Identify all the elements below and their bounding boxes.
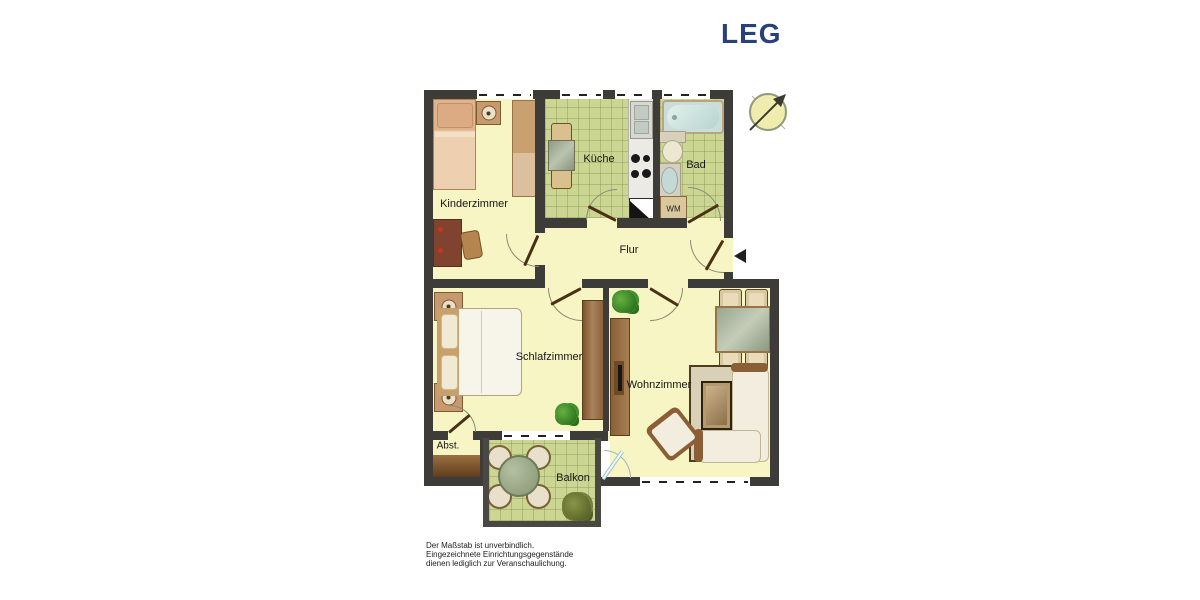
coffee-table <box>701 381 732 430</box>
nightstand <box>476 101 501 125</box>
wall <box>653 98 660 228</box>
sofa <box>699 430 761 463</box>
room-label-flur: Flur <box>620 244 639 256</box>
window <box>640 477 750 486</box>
wall <box>724 90 733 238</box>
sofa-armrest <box>731 363 768 372</box>
wall <box>688 279 779 288</box>
wall <box>582 279 648 288</box>
wall <box>424 477 483 486</box>
north-arrow-icon <box>742 86 794 138</box>
plant-icon <box>555 403 577 425</box>
single-bed <box>433 99 476 190</box>
double-bed <box>437 308 522 396</box>
stove <box>629 151 652 184</box>
wall <box>535 265 545 288</box>
wall <box>603 288 609 431</box>
room-label-balkon: Balkon <box>556 472 590 484</box>
wall <box>660 218 687 228</box>
wall <box>424 90 433 486</box>
washbasin <box>658 163 681 198</box>
window <box>477 90 533 99</box>
kitchen-sink <box>630 101 653 139</box>
room-label-schlafzimmer: Schlafzimmer <box>516 351 583 363</box>
disclaimer-line: dienen lediglich zur Veranschaulichung. <box>426 560 606 569</box>
wall <box>600 477 640 486</box>
entrance-direction-arrow-icon <box>734 249 746 263</box>
balcony-wall <box>483 521 601 527</box>
wall <box>424 431 448 440</box>
plant-icon <box>612 290 637 313</box>
storage-shelf <box>433 455 483 477</box>
leg-logo: LEG <box>721 18 782 50</box>
window <box>662 90 710 99</box>
disclaimer-text: Der Maßstab ist unverbindlich. Eingezeic… <box>426 542 606 569</box>
dining-table <box>715 306 771 353</box>
window <box>560 90 603 99</box>
room-label-kueche: Küche <box>583 153 614 165</box>
balcony-wall <box>483 438 489 527</box>
kitchen-table <box>548 140 575 171</box>
balcony-table <box>498 455 540 497</box>
room-label-kinderzimmer: Kinderzimmer <box>440 198 508 210</box>
wardrobe-shelf <box>512 100 536 197</box>
bathtub <box>662 100 724 134</box>
tv-cabinet <box>610 318 630 436</box>
wardrobe <box>582 300 605 420</box>
toilet <box>662 140 683 163</box>
room-label-wohnzimmer: Wohnzimmer <box>627 379 692 391</box>
washing-machine-label: WM <box>661 205 686 214</box>
kitchen-chair <box>551 168 572 189</box>
room-label-bad: Bad <box>686 159 706 171</box>
wall <box>770 279 779 486</box>
floor-plan-page: LEG WM <box>0 0 1200 600</box>
wall <box>535 98 545 233</box>
plant-icon <box>562 492 591 521</box>
window <box>615 90 652 99</box>
wall <box>545 218 587 228</box>
desk <box>433 219 462 267</box>
room-label-abstellraum: Abst. <box>437 441 460 452</box>
window <box>502 431 570 440</box>
wall <box>424 279 543 288</box>
